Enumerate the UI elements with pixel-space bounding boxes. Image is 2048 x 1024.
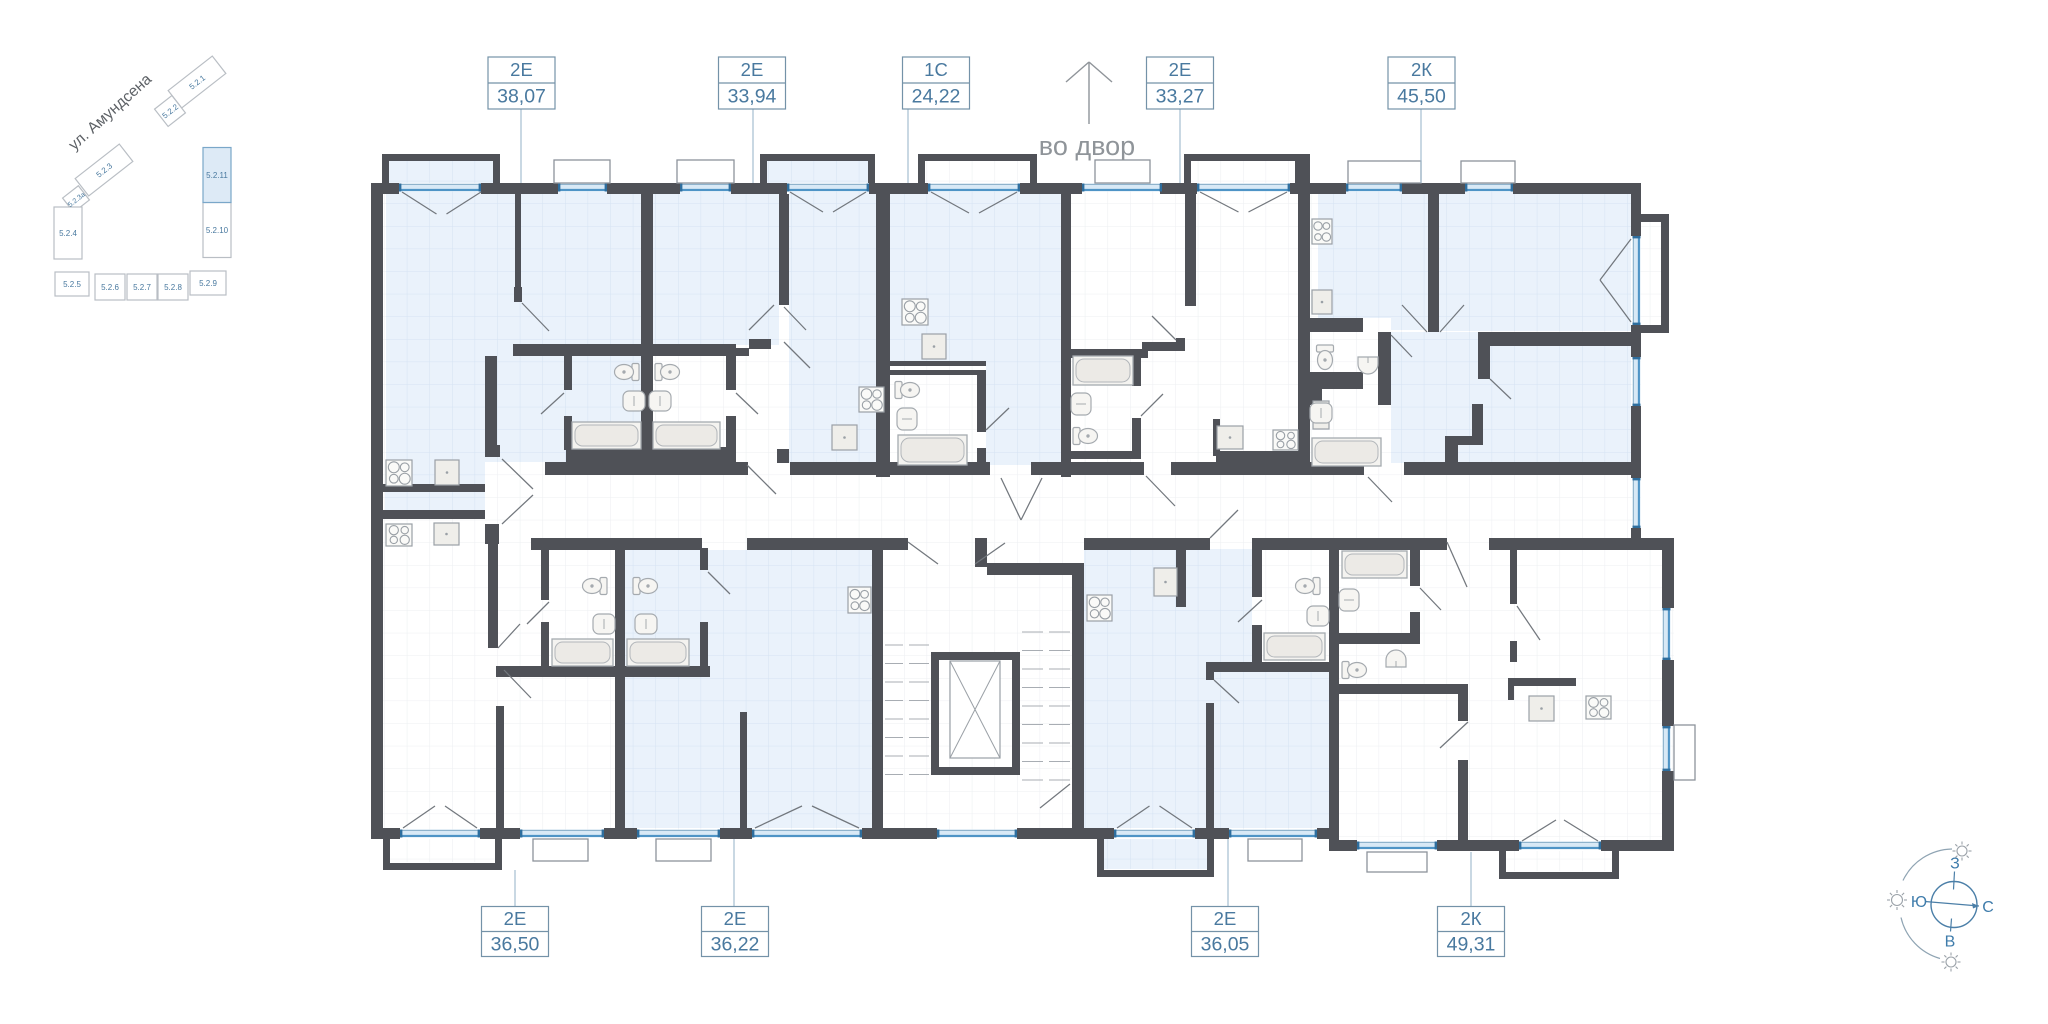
svg-text:2Е: 2Е	[724, 908, 747, 929]
svg-text:5.2.4: 5.2.4	[59, 229, 77, 238]
svg-text:2Е: 2Е	[510, 59, 533, 80]
svg-text:2Е: 2Е	[741, 59, 764, 80]
svg-text:5.2.11: 5.2.11	[206, 171, 228, 180]
svg-text:во двор: во двор	[1039, 131, 1135, 161]
svg-text:З: З	[1950, 856, 1960, 873]
svg-text:2Е: 2Е	[504, 908, 527, 929]
svg-text:36,22: 36,22	[711, 934, 760, 956]
svg-text:24,22: 24,22	[912, 86, 961, 108]
svg-text:В: В	[1945, 934, 1956, 951]
svg-text:5.2.7: 5.2.7	[133, 283, 151, 292]
svg-text:1С: 1С	[924, 59, 948, 80]
svg-text:5.2.5: 5.2.5	[63, 280, 81, 289]
svg-text:5.2.9: 5.2.9	[199, 279, 217, 288]
svg-text:36,05: 36,05	[1201, 934, 1250, 956]
svg-text:33,94: 33,94	[728, 86, 777, 108]
svg-text:36,50: 36,50	[491, 934, 540, 956]
svg-text:2Е: 2Е	[1169, 59, 1192, 80]
svg-text:2К: 2К	[1460, 908, 1481, 929]
svg-text:5.2.6: 5.2.6	[101, 283, 119, 292]
svg-text:2Е: 2Е	[1214, 908, 1237, 929]
svg-text:49,31: 49,31	[1447, 934, 1496, 956]
svg-text:45,50: 45,50	[1397, 86, 1446, 108]
svg-text:Ю: Ю	[1911, 894, 1927, 911]
svg-text:5.2.10: 5.2.10	[206, 226, 229, 235]
svg-text:2К: 2К	[1411, 59, 1432, 80]
svg-text:33,27: 33,27	[1156, 86, 1205, 108]
svg-text:5.2.8: 5.2.8	[164, 283, 182, 292]
svg-text:38,07: 38,07	[497, 86, 546, 108]
svg-text:С: С	[1982, 899, 1994, 916]
